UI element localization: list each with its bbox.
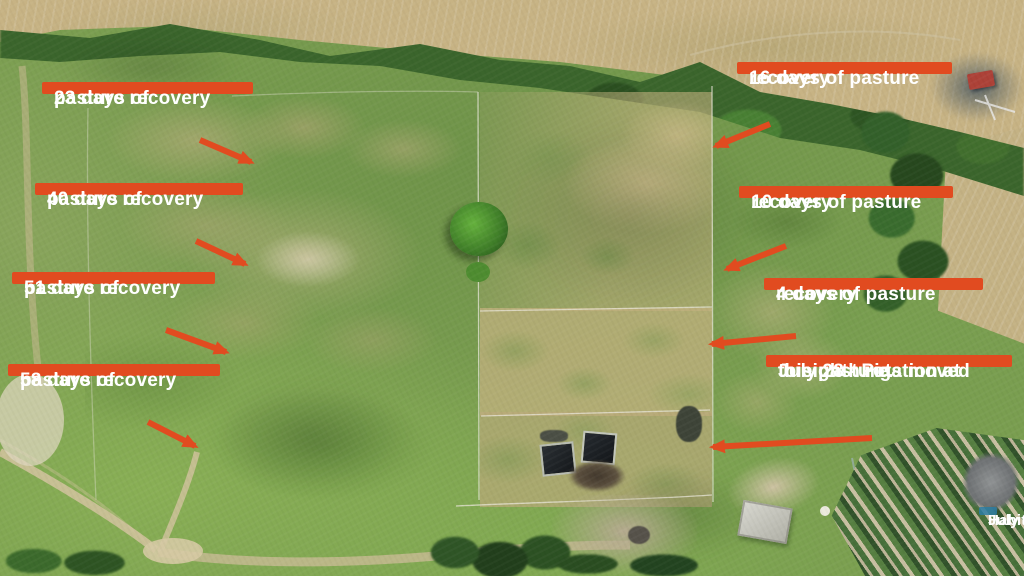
annotation-51-days: 51 days of pasture recovery: [12, 272, 215, 284]
annotation-23-days: 23 days of pasture recovery: [42, 82, 253, 94]
annotation-line: pasture recovery: [54, 87, 210, 111]
annotation-40-days: 40 days of pasture recovery: [35, 183, 243, 195]
annotation-line: pasture recovery: [24, 277, 180, 301]
annotation-10-days: 10 days of pasture recovery: [739, 186, 953, 198]
annotation-16-days: 16 days of pasture recovery: [737, 62, 952, 74]
stamp-title: Habitat Buffer: [988, 511, 1024, 530]
annotation-line: recovery: [751, 191, 832, 215]
annotation-4-days: 4 days of pasture recovery: [764, 278, 983, 290]
annotation-line: pasture recovery: [47, 188, 203, 212]
date-stamp: July 31, 2025 Habitat Buffer: [979, 507, 997, 515]
annotation-line: recovery: [749, 67, 830, 91]
annotation-line: this pasture.: [778, 360, 894, 384]
annotation-line: pasture recovery: [20, 369, 176, 393]
annotation-pigs-moved-note: July 28 - Pigs moved to eighth rotation …: [766, 355, 1012, 367]
annotation-58-days: 58 days of pasture recovery: [8, 364, 220, 376]
annotation-line: recovery: [776, 283, 857, 307]
annotated-pasture-screenshot: 23 days of pasture recovery 40 days of p…: [0, 0, 1024, 576]
